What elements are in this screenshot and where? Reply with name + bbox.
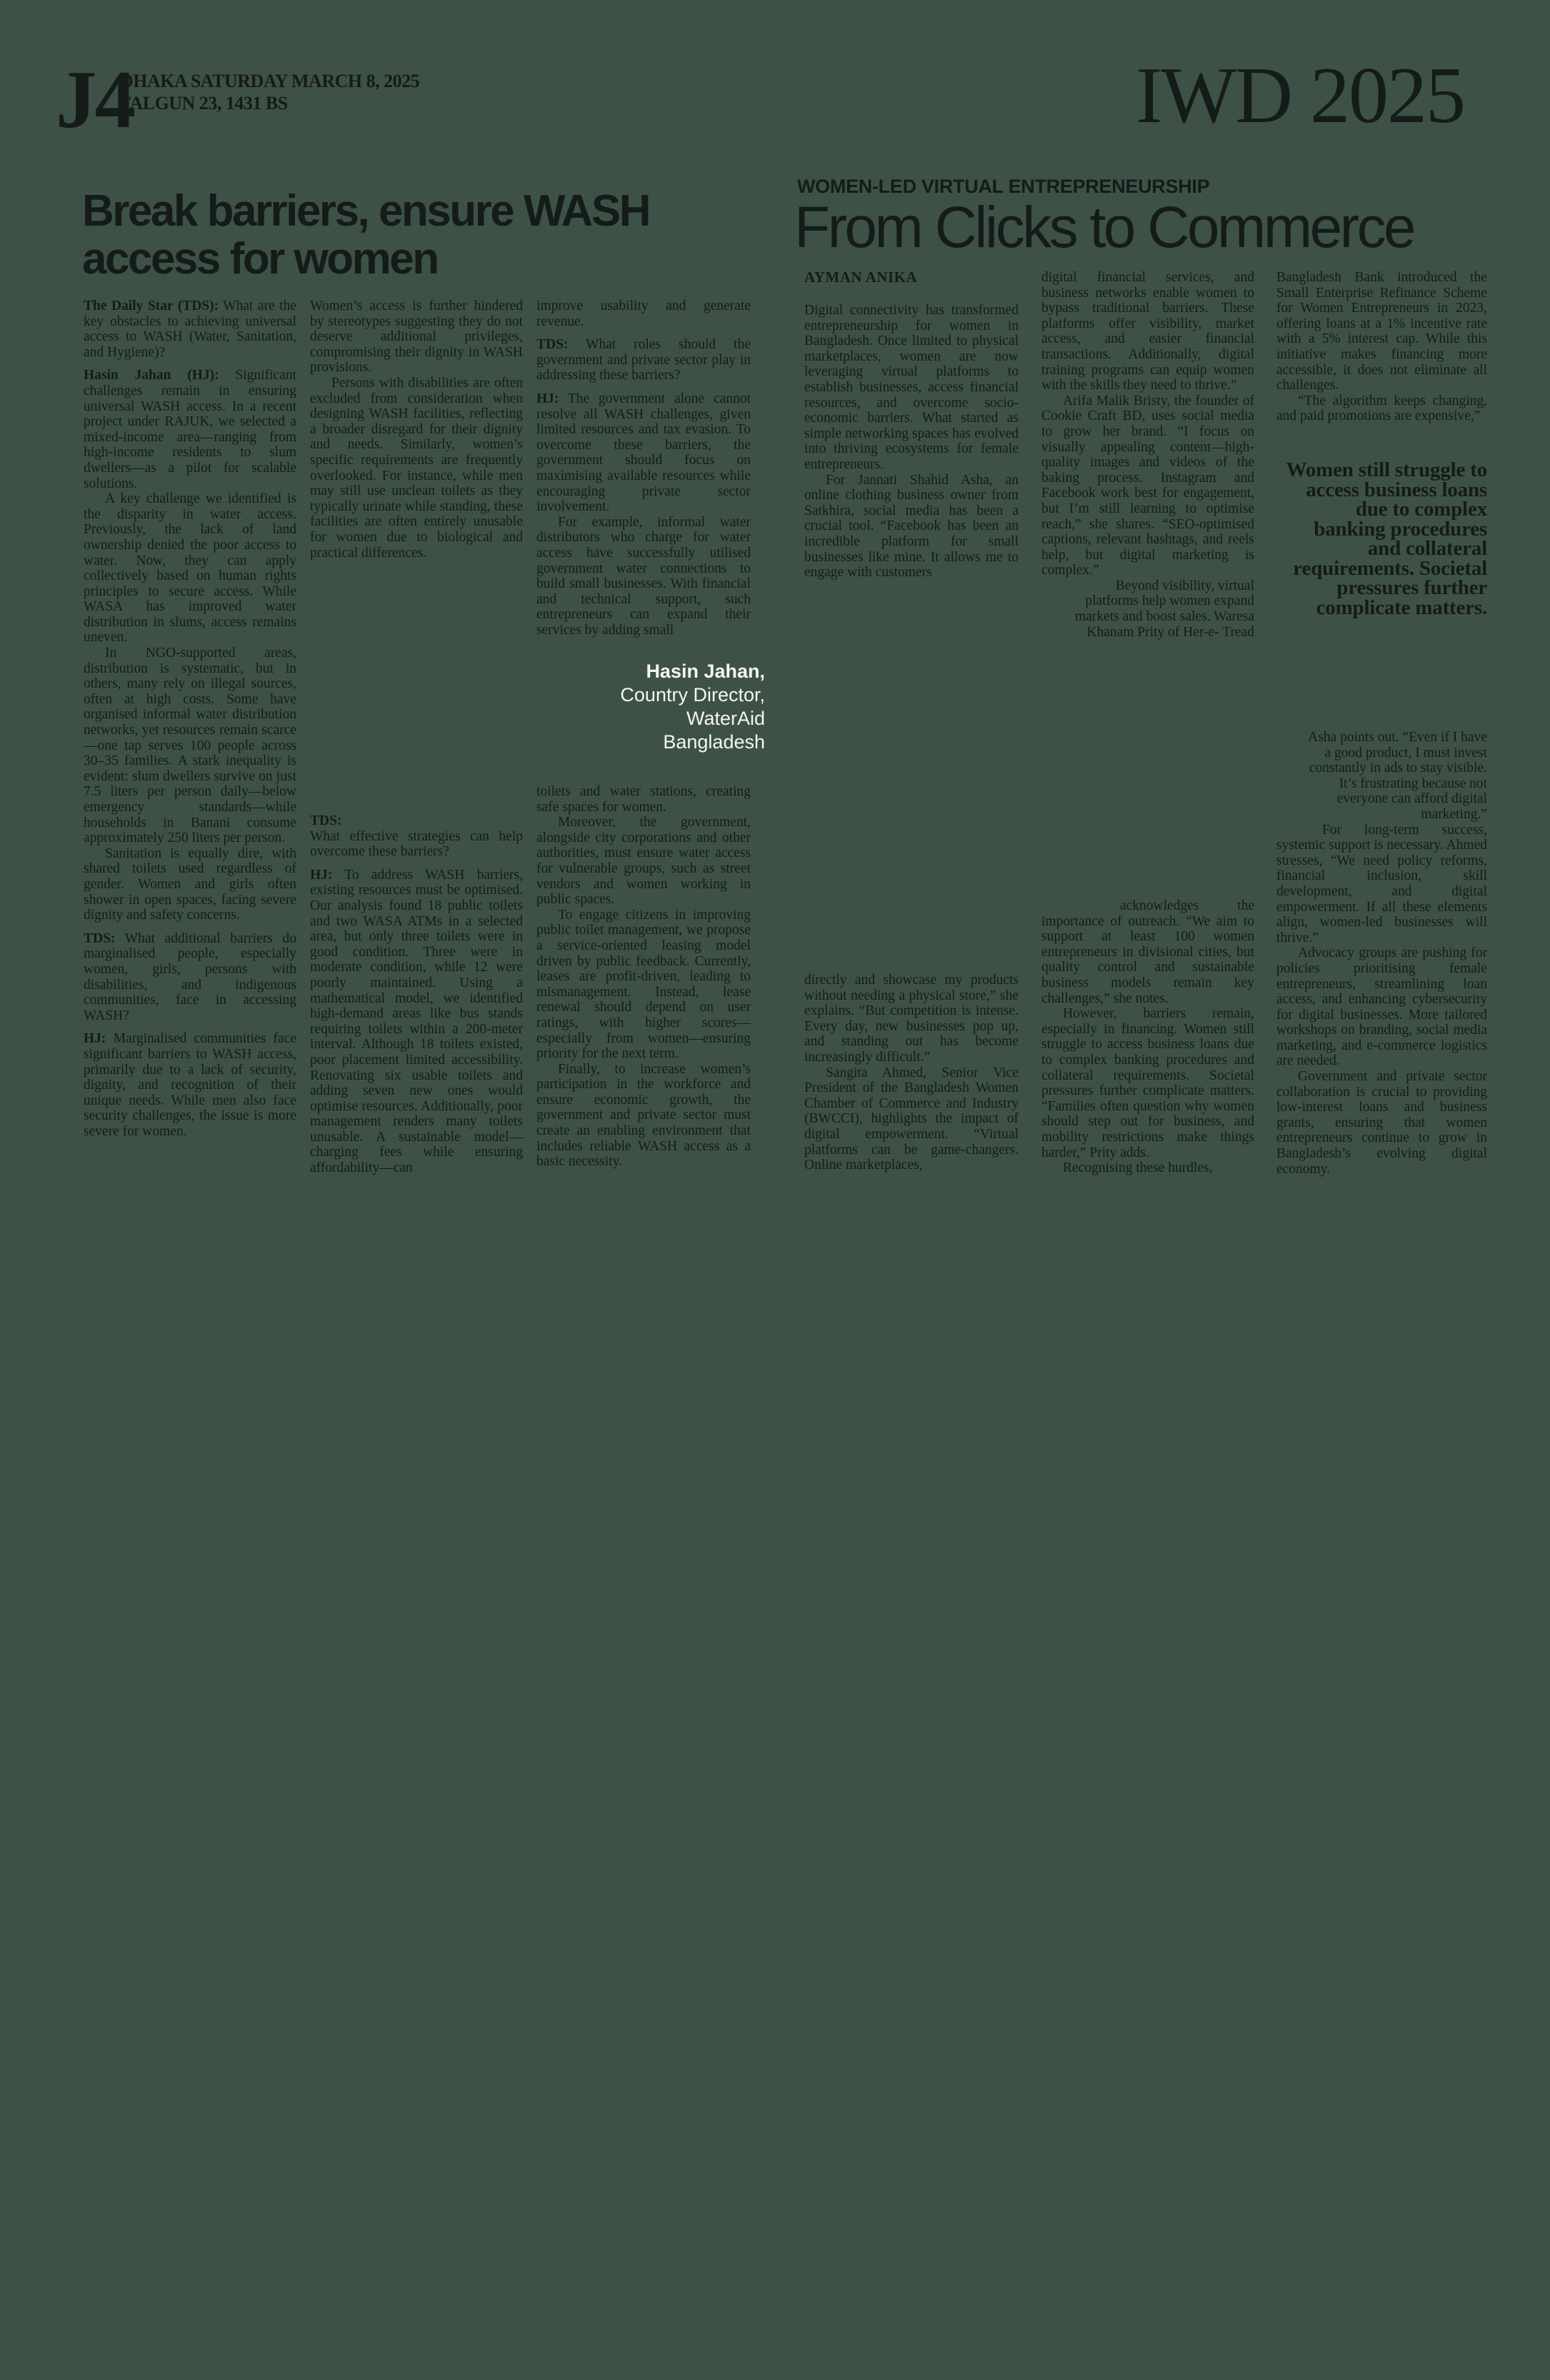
wash-column-3-top: improve usability and generate revenue.T… <box>536 298 751 638</box>
paragraph: For long-term success, systemic support … <box>1276 823 1487 946</box>
caption-role: Country Director, <box>522 683 765 707</box>
commerce-column-2-top: digital financial services, and business… <box>1041 270 1254 640</box>
paragraph-lead: TDS: <box>536 337 568 352</box>
commerce-column-2-bottom: acknowledges the importance of outreach.… <box>1041 898 1254 1176</box>
paragraph: Digital connectivity has transformed ent… <box>804 303 1019 473</box>
paragraph: For example, informal water distributors… <box>536 515 751 638</box>
paragraph: HJ: Marginalised communities face signif… <box>84 1031 296 1139</box>
caption-country: Bangladesh <box>522 730 765 754</box>
paragraph: TDS: What effective strategies can help … <box>310 813 523 860</box>
caption-org: WaterAid <box>522 707 765 730</box>
wash-column-2-bottom: TDS: What effective strategies can help … <box>310 805 523 1176</box>
paragraph: HJ: The government alone cannot resolve … <box>536 391 751 515</box>
paragraph: The Daily Star (TDS): What are the key o… <box>84 298 296 360</box>
paragraph: Arifa Malik Bristy, the founder of Cooki… <box>1041 393 1254 578</box>
paragraph: However, barriers remain, especially in … <box>1041 1006 1254 1160</box>
paragraph: To engage citizens in improving public t… <box>536 908 751 1062</box>
paragraph: HJ: To address WASH barriers, existing r… <box>310 868 523 1176</box>
wash-column-1: The Daily Star (TDS): What are the key o… <box>84 298 296 1139</box>
date-line-1: DHAKA SATURDAY MARCH 8, 2025 <box>120 70 419 92</box>
paragraph-lead: The Daily Star (TDS): <box>84 298 219 313</box>
commerce-column-3-top: Bangladesh Bank introduced the Small Ent… <box>1276 270 1487 424</box>
paragraph: Sanitation is equally dire, with shared … <box>84 846 296 923</box>
paragraph: Hasin Jahan (HJ): Significant challenges… <box>84 368 296 491</box>
paragraph: toilets and water stations, creating saf… <box>536 784 751 815</box>
commerce-byline: AYMAN ANIKA <box>804 270 917 285</box>
paragraph-lead: HJ: <box>84 1031 106 1046</box>
paragraph-lead: Hasin Jahan (HJ): <box>84 368 219 383</box>
paragraph: directly and showcase my products withou… <box>804 973 1019 1065</box>
edition-badge: IWD 2025 <box>1036 56 1464 136</box>
date-line-2: FALGUN 23, 1431 BS <box>120 92 419 114</box>
paragraph: Beyond visibility, virtual platforms hel… <box>1041 578 1254 640</box>
commerce-column-1-top: Digital connectivity has transformed ent… <box>804 303 1019 581</box>
paragraph: Asha points out. “Even if I have a good … <box>1276 730 1487 823</box>
wash-article-title: Break barriers, ensure WASH access for w… <box>82 187 782 283</box>
paragraph: In NGO-supported areas, distribution is … <box>84 646 296 846</box>
paragraph: acknowledges the importance of outreach.… <box>1041 898 1254 1006</box>
commerce-column-1-bottom: directly and showcase my products withou… <box>804 973 1019 1173</box>
masthead-dateline: DHAKA SATURDAY MARCH 8, 2025 FALGUN 23, … <box>120 70 419 114</box>
paragraph: Advocacy groups are pushing for policies… <box>1276 945 1487 1069</box>
wash-column-2-top: Women’s access is further hindered by st… <box>310 298 523 561</box>
wash-column-3-bottom: toilets and water stations, creating saf… <box>536 784 751 1170</box>
paragraph-lead: HJ: <box>536 391 559 406</box>
paragraph: A key challenge we identified is the dis… <box>84 491 296 646</box>
paragraph: digital financial services, and business… <box>1041 270 1254 393</box>
paragraph-lead: TDS: <box>310 813 523 829</box>
paragraph: improve usability and generate revenue. <box>536 298 751 329</box>
paragraph: Government and private sector collaborat… <box>1276 1069 1487 1177</box>
paragraph-lead: TDS: <box>84 931 115 946</box>
paragraph: For Jannati Shahid Asha, an online cloth… <box>804 473 1019 581</box>
paragraph: TDS: What additional barriers do margina… <box>84 931 296 1024</box>
paragraph: Persons with disabilities are often excl… <box>310 376 523 561</box>
caption-name: Hasin Jahan, <box>522 660 765 683</box>
paragraph-lead: HJ: <box>310 868 332 883</box>
paragraph: Bangladesh Bank introduced the Small Ent… <box>1276 270 1487 393</box>
paragraph: Sangita Ahmed, Senior Vice President of … <box>804 1065 1019 1173</box>
commerce-column-3-bottom: Asha points out. “Even if I have a good … <box>1276 730 1487 1177</box>
paragraph: Finally, to increase women’s participati… <box>536 1062 751 1170</box>
newspaper-page: J4 DHAKA SATURDAY MARCH 8, 2025 FALGUN 2… <box>0 0 1550 2380</box>
paragraph: Recognising these hurdles, <box>1041 1160 1254 1176</box>
paragraph: Women’s access is further hindered by st… <box>310 298 523 376</box>
paragraph: Moreover, the government, alongside city… <box>536 815 751 908</box>
pull-quote: Women still struggle to access business … <box>1280 461 1487 618</box>
paragraph: TDS: What roles should the government an… <box>536 337 751 383</box>
commerce-headline: From Clicks to Commerce <box>794 199 1414 257</box>
paragraph: “The algorithm keeps changing, and paid … <box>1276 393 1487 424</box>
photo-caption: Hasin Jahan, Country Director, WaterAid … <box>522 660 765 754</box>
commerce-kicker: WOMEN-LED VIRTUAL ENTREPRENEURSHIP <box>797 177 1209 196</box>
